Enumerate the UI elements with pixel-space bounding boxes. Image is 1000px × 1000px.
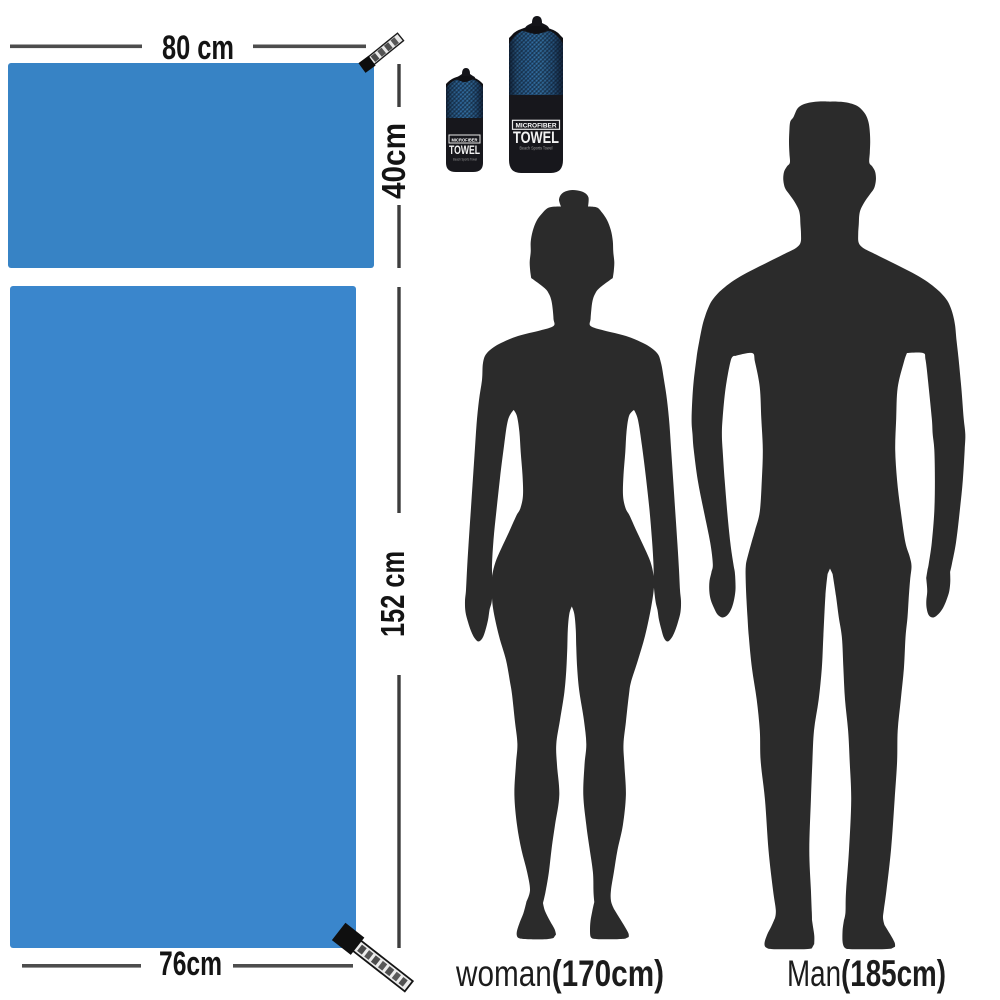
svg-text:76cm: 76cm (159, 945, 222, 983)
svg-text:40cm: 40cm (375, 123, 412, 199)
svg-text:TOWEL: TOWEL (513, 128, 559, 147)
svg-text:MICROFIBER: MICROFIBER (452, 138, 479, 143)
svg-text:80 cm: 80 cm (162, 29, 234, 67)
svg-text:Man(185cm): Man(185cm) (787, 953, 946, 994)
svg-text:152 cm: 152 cm (374, 551, 411, 637)
svg-text:TOWEL: TOWEL (449, 143, 480, 157)
svg-text:woman(170cm): woman(170cm) (455, 953, 664, 994)
svg-text:Beach Sports Towel: Beach Sports Towel (520, 146, 553, 152)
svg-text:Beach Sports Towel: Beach Sports Towel (453, 158, 477, 162)
